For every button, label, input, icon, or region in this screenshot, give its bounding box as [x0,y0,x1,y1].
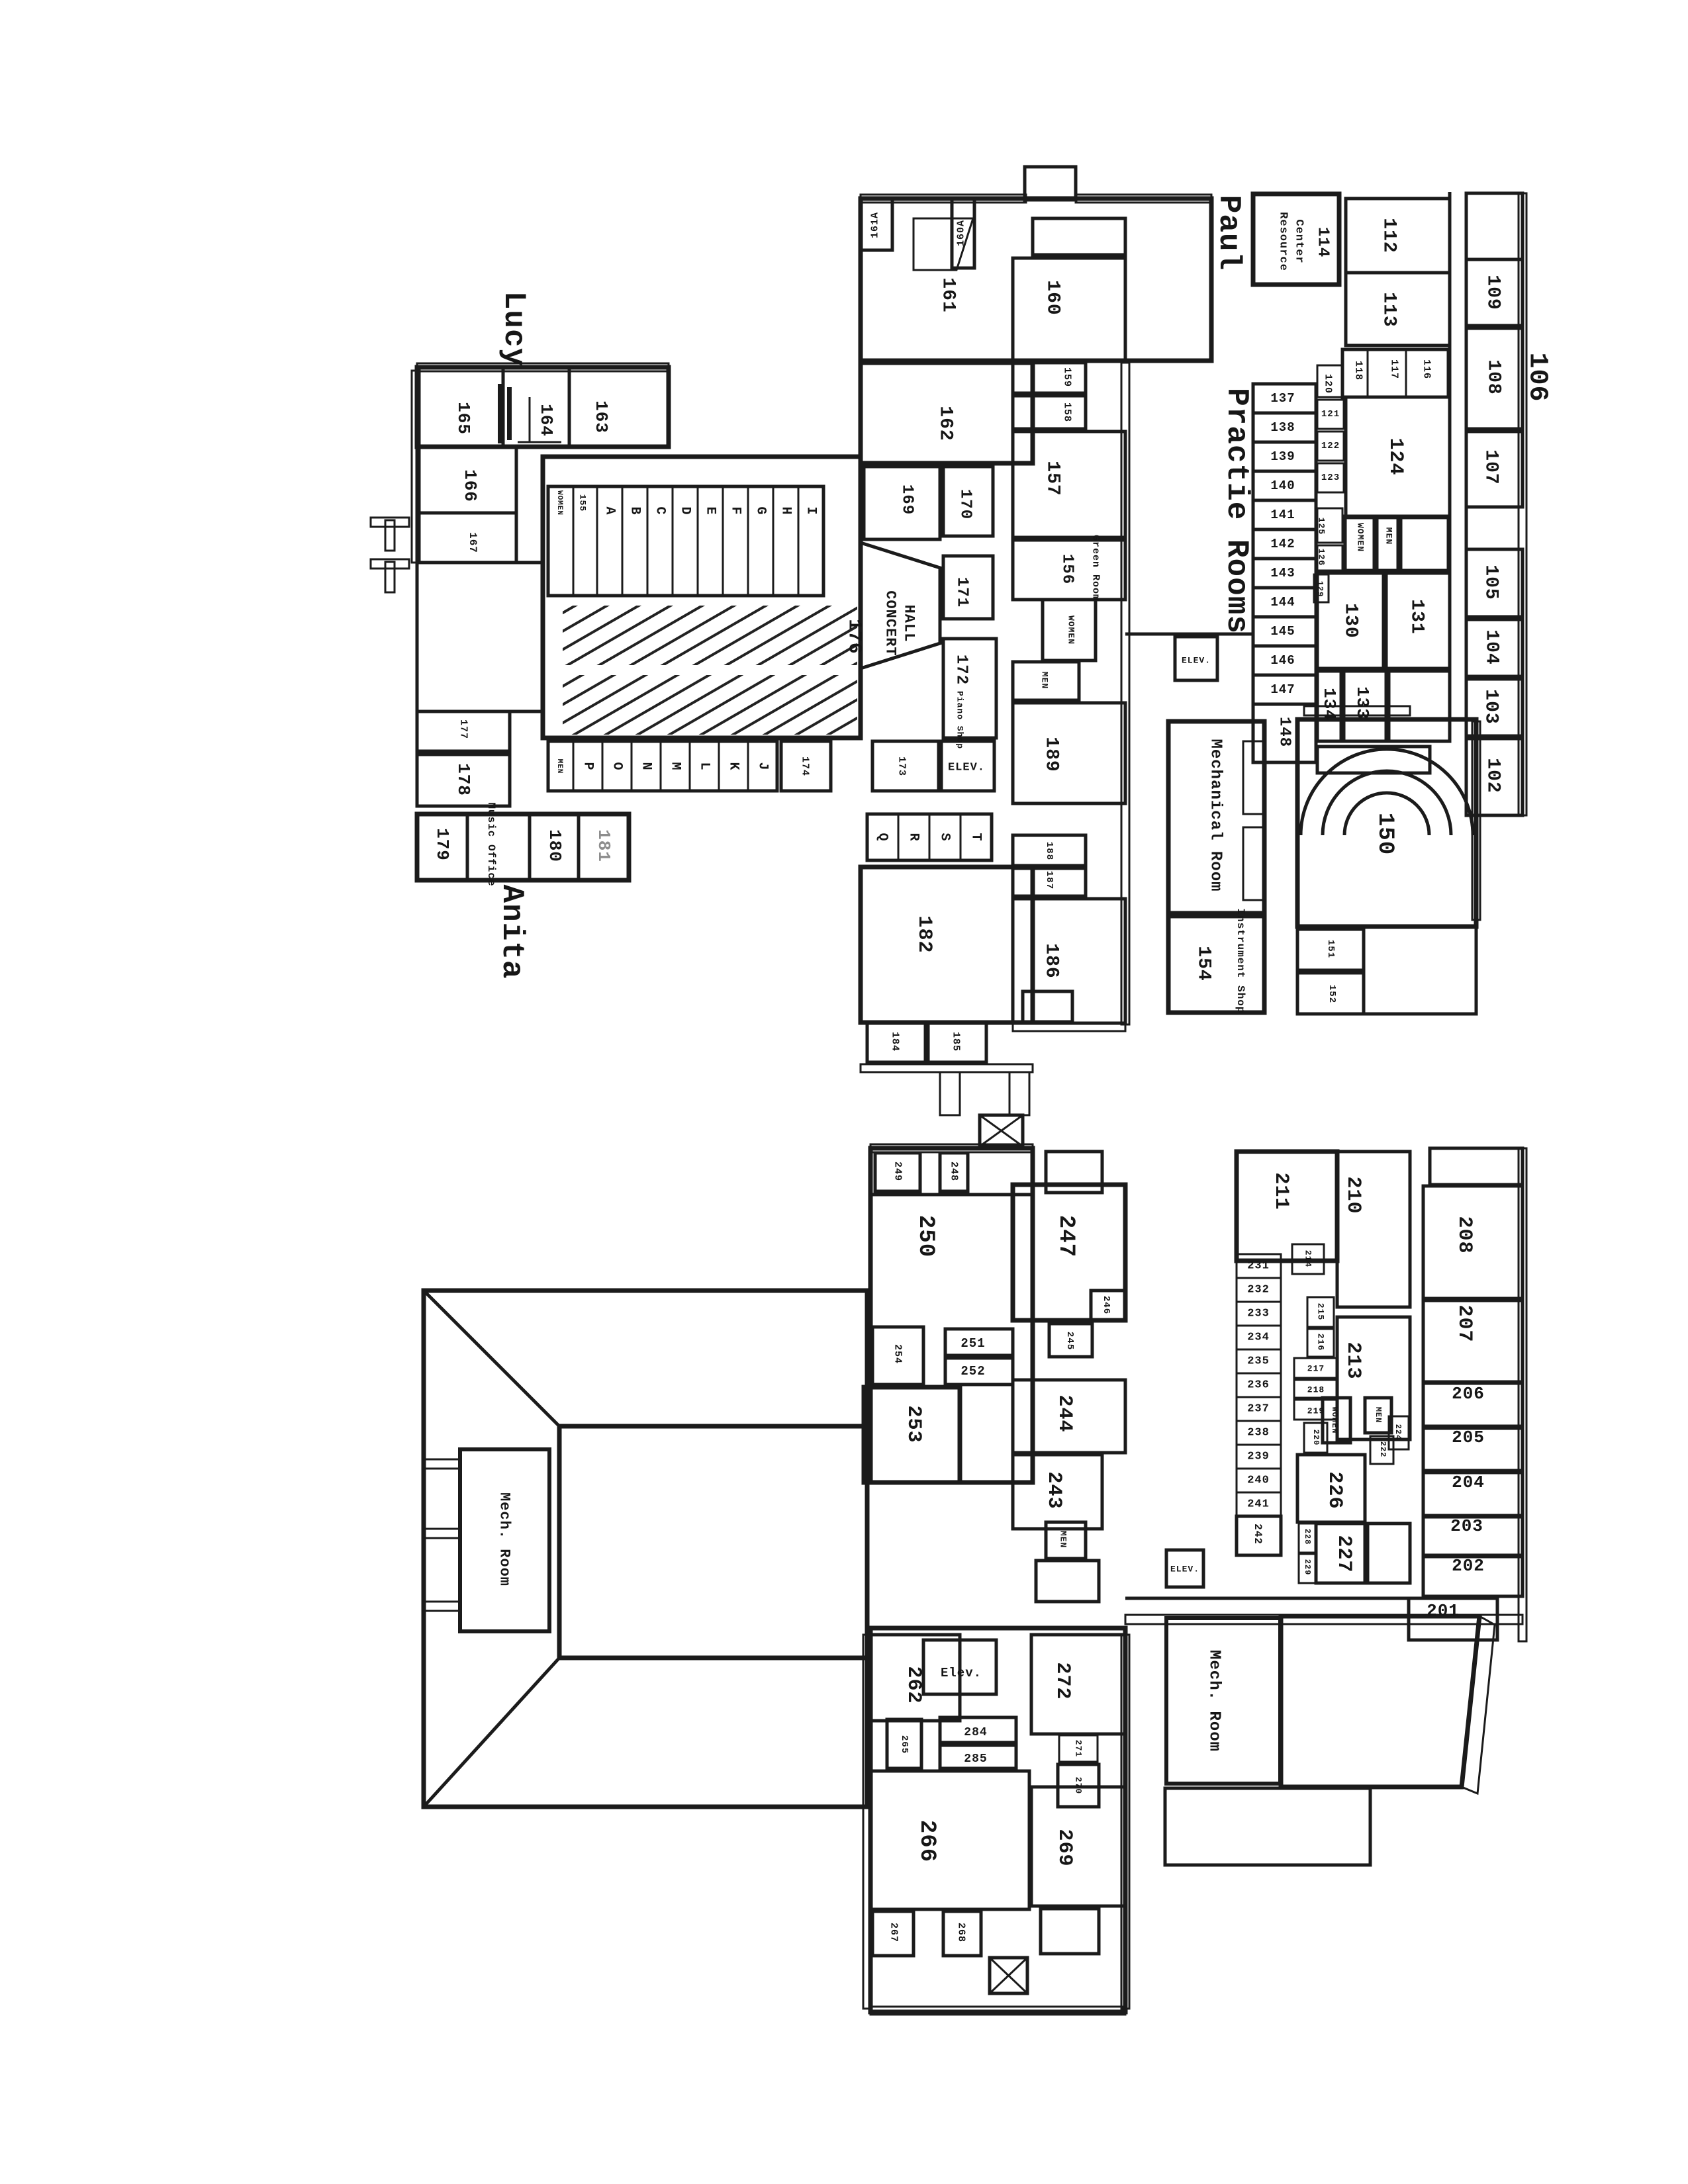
label-166: 166 [460,469,480,502]
label-elev-: Elev. [941,1666,982,1680]
label-elev-: ELEV. [1170,1565,1199,1574]
label-157: 157 [1043,461,1063,496]
label-186: 186 [1041,943,1062,978]
label-138: 138 [1270,420,1295,435]
label-o: O [610,762,625,770]
label-253: 253 [902,1405,925,1443]
label-129: 129 [1315,581,1325,598]
label-b: B [628,506,643,515]
label-164: 164 [536,404,556,437]
label-women: WOMEN [555,490,563,516]
label-d: D [678,506,693,515]
label-121: 121 [1321,409,1340,420]
label-271: 271 [1074,1740,1084,1757]
label-222: 222 [1378,1441,1387,1458]
label-184: 184 [890,1032,901,1052]
label-179: 179 [432,828,452,861]
label-practie-rooms: Practie Rooms [1219,388,1254,634]
label-177: 177 [458,719,469,739]
stage-walls [861,543,940,668]
label-180: 180 [545,829,565,862]
label-123: 123 [1321,473,1340,483]
label-155: 155 [578,494,588,512]
floor-plan-drawing: scanned floor plan [0,0,1688,2184]
label-133: 133 [1352,686,1372,719]
label-270: 270 [1074,1777,1084,1794]
label-112: 112 [1379,218,1399,253]
label-154: 154 [1194,946,1214,981]
label-l: L [697,762,712,770]
label-210: 210 [1342,1176,1364,1214]
label-242: 242 [1252,1524,1264,1545]
label-245: 245 [1064,1332,1075,1350]
label-269: 269 [1053,1829,1076,1866]
label-251: 251 [961,1336,985,1351]
label-120: 120 [1323,374,1334,394]
label-250: 250 [913,1215,938,1257]
label-182: 182 [913,915,935,953]
label-118: 118 [1353,361,1364,381]
roof-stippled-south [1165,1788,1370,1865]
label-189: 189 [1041,737,1062,772]
label-lucy: Lucy [496,291,531,367]
label-117: 117 [1389,359,1400,379]
label-146: 146 [1270,653,1295,668]
label-113: 113 [1379,292,1399,327]
label-173: 173 [896,756,908,776]
label-272: 272 [1051,1662,1074,1700]
label-143: 143 [1270,566,1295,580]
label-102: 102 [1483,758,1503,793]
label-174: 174 [800,756,811,776]
label-104: 104 [1481,629,1502,664]
label-205: 205 [1452,1428,1485,1447]
stairs-f2-269 [1041,1909,1099,1954]
label-152: 152 [1327,985,1337,1003]
label-185: 185 [951,1032,962,1052]
label-188: 188 [1044,842,1055,860]
label-piano-shop: Piano Shop [955,691,965,749]
label-249: 249 [892,1161,904,1181]
label-p: P [581,762,596,770]
label-women: WOMEN [1356,523,1366,552]
label-217: 217 [1307,1364,1325,1374]
label-206: 206 [1452,1384,1485,1404]
label-h: H [778,506,794,515]
label-139: 139 [1270,449,1295,464]
stairs-mech-2 [1243,827,1264,900]
label-q: Q [875,833,890,841]
label-106: 106 [1523,352,1552,402]
stairs-109 [1466,193,1523,259]
label-156: 156 [1058,554,1076,584]
label-208: 208 [1453,1216,1476,1253]
label-105: 105 [1481,565,1501,600]
label-224: 224 [1393,1424,1403,1441]
label-237: 237 [1247,1403,1270,1416]
label-elev-: ELEV. [948,762,985,774]
label-176: 176 [844,619,865,654]
label-144: 144 [1270,595,1295,610]
label-m: M [668,762,683,770]
label-214: 214 [1303,1250,1313,1267]
label-s: S [937,833,953,841]
label-187: 187 [1044,871,1055,889]
label-hall: HALL [901,605,917,643]
label-125: 125 [1317,518,1327,535]
label-162: 162 [935,406,956,441]
roof-areas [424,1291,1495,1865]
organ-hall-150 [1297,719,1476,1014]
label-men: MEN [1040,672,1050,689]
label-229: 229 [1303,1559,1312,1576]
label-246: 246 [1101,1296,1111,1314]
label-267: 267 [888,1923,900,1942]
label-240: 240 [1247,1475,1270,1487]
label-265: 265 [899,1735,910,1754]
label-145: 145 [1270,624,1295,639]
label-241: 241 [1247,1498,1270,1511]
label-140: 140 [1270,478,1295,493]
label-161: 161 [938,277,959,312]
label-men: MEN [1384,527,1394,545]
label-126: 126 [1317,549,1327,566]
roof-hatched-hall [559,1426,867,1658]
label-men: MEN [1374,1407,1383,1424]
label-254: 254 [892,1344,904,1364]
label-142: 142 [1270,537,1295,551]
concert-hall [543,457,996,860]
label-green-room: Green Room [1090,535,1102,601]
label-109: 109 [1483,275,1503,310]
label-167: 167 [467,532,479,553]
floor2-window-bands [863,1144,1526,2015]
label-k: K [726,762,741,770]
label-122: 122 [1321,441,1340,451]
stairs-f2-208 [1430,1148,1523,1185]
label-218: 218 [1307,1385,1325,1395]
floor1-182-block-walls [861,867,1033,1115]
label-243: 243 [1043,1471,1065,1509]
label-mech-room: Mech. Room [1205,1650,1223,1752]
label-137: 137 [1270,391,1295,406]
label-170: 170 [957,489,974,520]
label-163: 163 [591,400,611,433]
label-238: 238 [1247,1427,1270,1439]
label-c: C [653,506,668,515]
label-227: 227 [1333,1535,1355,1572]
label-anita: Anita [494,884,529,979]
label-165: 165 [453,402,473,435]
label-men: MEN [555,759,563,774]
label-mechanical-room: Mechanical Room [1207,739,1225,891]
label-236: 236 [1247,1379,1270,1392]
label-mech-room: Mech. Room [496,1492,513,1586]
label-228: 228 [1303,1529,1312,1545]
label-130: 130 [1340,603,1361,638]
label-252: 252 [961,1364,985,1379]
label-resource: Resource [1277,212,1289,271]
label-219: 219 [1307,1406,1325,1416]
label-n: N [639,762,654,770]
label-211: 211 [1270,1172,1292,1210]
label-220: 220 [1311,1430,1321,1446]
label-231: 231 [1247,1260,1270,1273]
label-music-office: Music Office [485,802,497,886]
concert-hall-seating [563,606,857,735]
label-r: R [906,833,921,841]
label-160a: 160A [956,220,967,246]
label-151: 151 [1325,940,1336,958]
label-148: 148 [1276,717,1293,747]
label-234: 234 [1247,1332,1270,1344]
label-116: 116 [1421,359,1432,379]
label-171: 171 [953,577,971,608]
label-226: 226 [1323,1471,1346,1509]
label-235: 235 [1247,1355,1270,1368]
roof-hatched-organ [1281,1616,1479,1787]
label-107: 107 [1481,449,1501,484]
label-204: 204 [1452,1473,1485,1492]
label-a: A [602,506,618,515]
label-239: 239 [1247,1451,1270,1463]
label-284: 284 [964,1726,987,1739]
scanned-floor-plan-page: scanned floor plan [0,0,1688,2184]
label-141: 141 [1270,508,1295,522]
label-172: 172 [953,655,970,685]
label-247: 247 [1053,1215,1078,1257]
stairs-restrooms [1401,516,1448,570]
label-114: 114 [1314,227,1332,257]
label-concert: CONCERT [882,590,899,656]
label-161a: 161A [870,212,881,238]
floor2-plan [424,1115,1526,2015]
label-216: 216 [1316,1334,1326,1351]
label-women: WOMEN [1330,1406,1339,1433]
label-j: J [755,762,771,770]
label-158: 158 [1062,402,1073,422]
label-e: E [703,506,718,515]
label-i: I [804,506,819,515]
label-men: MEN [1058,1531,1068,1548]
label-150: 150 [1372,813,1397,855]
stairs-f2-243 [1036,1561,1099,1602]
label-f: F [728,506,743,515]
label-108: 108 [1483,359,1504,394]
label-elev-: ELEV. [1182,656,1211,666]
label-268: 268 [956,1923,967,1942]
label-center: Center [1293,219,1305,263]
label-159: 159 [1062,367,1073,387]
label-285: 285 [964,1752,987,1766]
stairs-f2-227 [1368,1524,1410,1583]
label-103: 103 [1481,689,1501,724]
label-169: 169 [898,484,916,515]
stairs-186 [1023,991,1072,1022]
label-178: 178 [453,763,473,796]
label-women: WOMEN [1066,615,1076,645]
label-203: 203 [1450,1516,1483,1536]
label-124: 124 [1384,437,1407,475]
label-instrument-shop: Instrument Shop [1235,908,1246,1013]
label-213: 213 [1342,1342,1364,1379]
label-207: 207 [1453,1304,1476,1342]
label-t: T [968,833,984,841]
label-201: 201 [1427,1601,1460,1621]
label-262: 262 [902,1666,925,1704]
floor1-north-block-walls [861,167,1211,1023]
label-134: 134 [1319,688,1339,721]
label-244: 244 [1053,1394,1076,1432]
roof-vents [980,1115,1027,1993]
label-215: 215 [1316,1303,1326,1320]
label-147: 147 [1270,682,1295,697]
label-266: 266 [914,1820,939,1862]
label-233: 233 [1247,1308,1270,1320]
stairs-160 [1033,218,1125,255]
label-232: 232 [1247,1284,1270,1297]
label-paul: Paul [1211,195,1246,271]
label-131: 131 [1407,599,1427,634]
label-160: 160 [1043,280,1063,315]
label-g: G [753,506,769,515]
label-202: 202 [1452,1556,1485,1576]
label-248: 248 [949,1161,960,1181]
label-181: 181 [594,829,614,862]
